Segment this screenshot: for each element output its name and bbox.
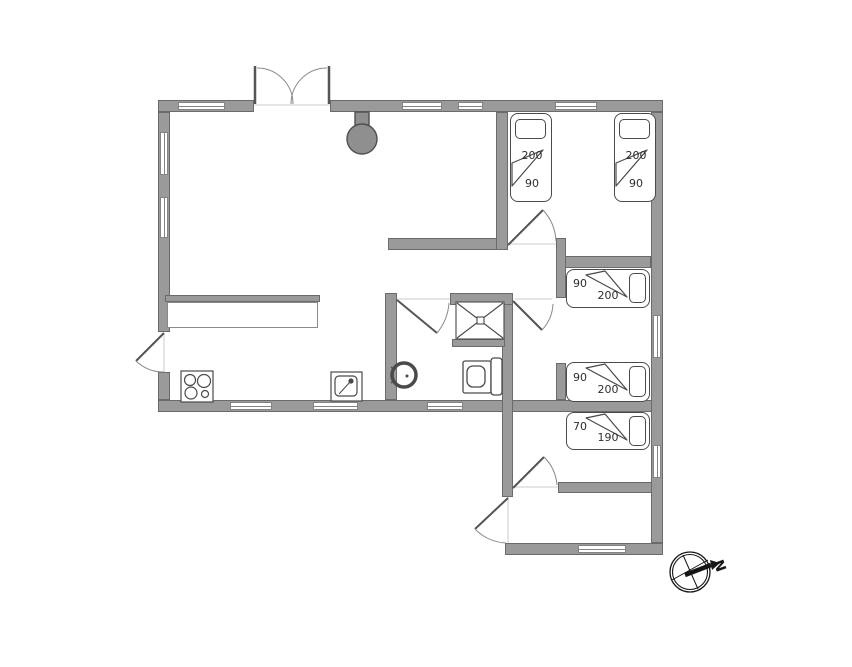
bed-width-label: 90 [566, 278, 594, 290]
washbasin-icon [391, 363, 416, 387]
double-door-main-entrance [255, 66, 329, 104]
compass-north-label: N [709, 558, 728, 574]
bed-length-label: 200 [588, 384, 628, 396]
door-corridor [513, 301, 553, 330]
kitchen-sink-icon [331, 372, 362, 401]
toilet-icon [463, 358, 502, 395]
bed-length-label: 200 [618, 150, 654, 162]
bed-length-label: 190 [588, 432, 628, 444]
floor-plan-canvas: 200 90 200 90 90 200 90 200 70 190 [0, 0, 852, 667]
door-bedroom-top-right [508, 210, 556, 245]
door-bathroom [397, 300, 449, 333]
bed-length-label: 200 [588, 290, 628, 302]
door-vestibule-exterior [475, 498, 508, 543]
door-kitchen-west [136, 333, 164, 372]
fixtures-overlay: N [0, 0, 852, 667]
bed-width-label: 90 [514, 178, 550, 190]
cooktop-icon [181, 371, 213, 402]
bed-length-label: 200 [514, 150, 550, 162]
shower-icon [456, 302, 504, 339]
compass-icon: N [670, 552, 729, 592]
wood-stove-icon [347, 112, 377, 154]
bed-width-label: 90 [566, 372, 594, 384]
bed-width-label: 90 [618, 178, 654, 190]
door-vestibule-inner [513, 457, 557, 488]
